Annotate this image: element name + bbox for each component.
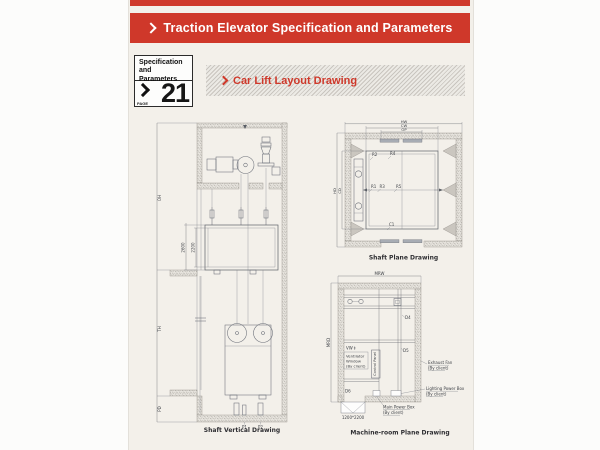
main-power-box-label: Main Power Box	[383, 405, 415, 410]
page-tab-body: PAGE 21	[135, 81, 192, 107]
overhead-dim-label: OH	[157, 195, 162, 201]
catalog-page-scan: Traction Elevator Specification and Para…	[0, 0, 600, 450]
ref-c1: C1	[389, 222, 395, 227]
main-by-client: (By client)	[383, 410, 404, 415]
title-banner: Traction Elevator Specification and Para…	[130, 13, 470, 43]
ventilator-window-annotation: VW ↕ Ventilator Window (By client)	[344, 346, 368, 370]
shaft-walls	[170, 189, 287, 422]
car-depth-label: CD	[337, 188, 342, 194]
reference-labels: R2 R4 R1 R3 R5 C1	[369, 151, 402, 230]
ropes-and-hitches	[210, 168, 268, 324]
shaft-vertical-drawing: 2600 2200 P1 P2 OH TH	[150, 113, 305, 435]
shaft-vertical-caption: Shaft Vertical Drawing	[204, 427, 280, 434]
shaft-plane-drawing: R2 R4 R1 R3 R5 C1 HW CW OP	[330, 115, 475, 263]
opening-width-label: OP	[401, 127, 407, 132]
ref-d5: D5	[403, 348, 409, 353]
section-banner: Car Lift Layout Drawing	[206, 65, 465, 96]
overspeed-governor	[258, 137, 280, 175]
top-red-strip	[130, 0, 470, 6]
ref-vw: VW	[346, 346, 353, 351]
machine-room-caption: Machine-room Plane Drawing	[350, 430, 449, 437]
ref-r5: R5	[396, 184, 402, 189]
page-title: Traction Elevator Specification and Para…	[163, 21, 452, 35]
ref-r3: R3	[380, 184, 386, 189]
control-panel: Control Panel	[372, 350, 381, 378]
ref-r1: R1	[371, 184, 377, 189]
lighting-by-client: (By client)	[426, 392, 447, 397]
exhaust-fan-label: Exhaust Fan	[428, 360, 453, 365]
access-door: 1200*2200	[341, 402, 365, 420]
counterweight-plan	[354, 159, 363, 221]
page-number: 21	[161, 78, 189, 109]
door-size-label: 1200*2200	[342, 415, 365, 420]
machine-room-depth-label: MRD	[326, 338, 331, 347]
travel-dim-label: TH	[157, 326, 162, 332]
car-outer-height-label: 2600	[181, 242, 186, 253]
car-plan	[366, 151, 438, 229]
page-number-tab: Specification and Parameters PAGE 21	[134, 55, 193, 107]
car-inner-height-label: 2200	[191, 242, 196, 253]
exhaust-fan-annotation: Exhaust Fan (By client)	[421, 360, 453, 371]
car-dimensions: 2600 2200	[181, 223, 209, 270]
section-title: Car Lift Layout Drawing	[233, 75, 357, 87]
ventilator-line2: Window	[346, 358, 361, 363]
counterweight-and-pit: P1 P2	[195, 270, 273, 430]
machine-room-plane-drawing: MRW MRD D4 D5 D6 VW ↕ Ventilat	[325, 262, 475, 440]
chevron-right-icon	[136, 83, 150, 97]
chevron-right-icon	[146, 22, 157, 33]
elevator-car	[205, 225, 278, 274]
chevron-right-icon	[219, 76, 229, 86]
lighting-power-box-label: Lighting Power Box	[426, 386, 465, 391]
ref-d6: D6	[345, 389, 351, 394]
ref-r2: R2	[372, 152, 378, 157]
page-tab-line1: Specification	[139, 59, 189, 67]
updown-arrow-icon: ↕	[353, 346, 356, 351]
shaft-plane-caption: Shaft Plane Drawing	[369, 255, 438, 262]
page-label: PAGE	[137, 102, 148, 107]
ventilator-by-client: (By client)	[346, 364, 366, 369]
ref-r4: R4	[390, 151, 396, 156]
control-panel-label: Control Panel	[373, 352, 377, 376]
pit-depth-dim-label: PD	[157, 406, 162, 412]
exhaust-fan-by-client: (By client)	[428, 366, 449, 371]
machine-room-width-label: MRW	[374, 271, 384, 276]
ref-d4: D4	[405, 315, 411, 320]
traction-machine	[207, 157, 254, 174]
floor-beams	[344, 289, 415, 396]
